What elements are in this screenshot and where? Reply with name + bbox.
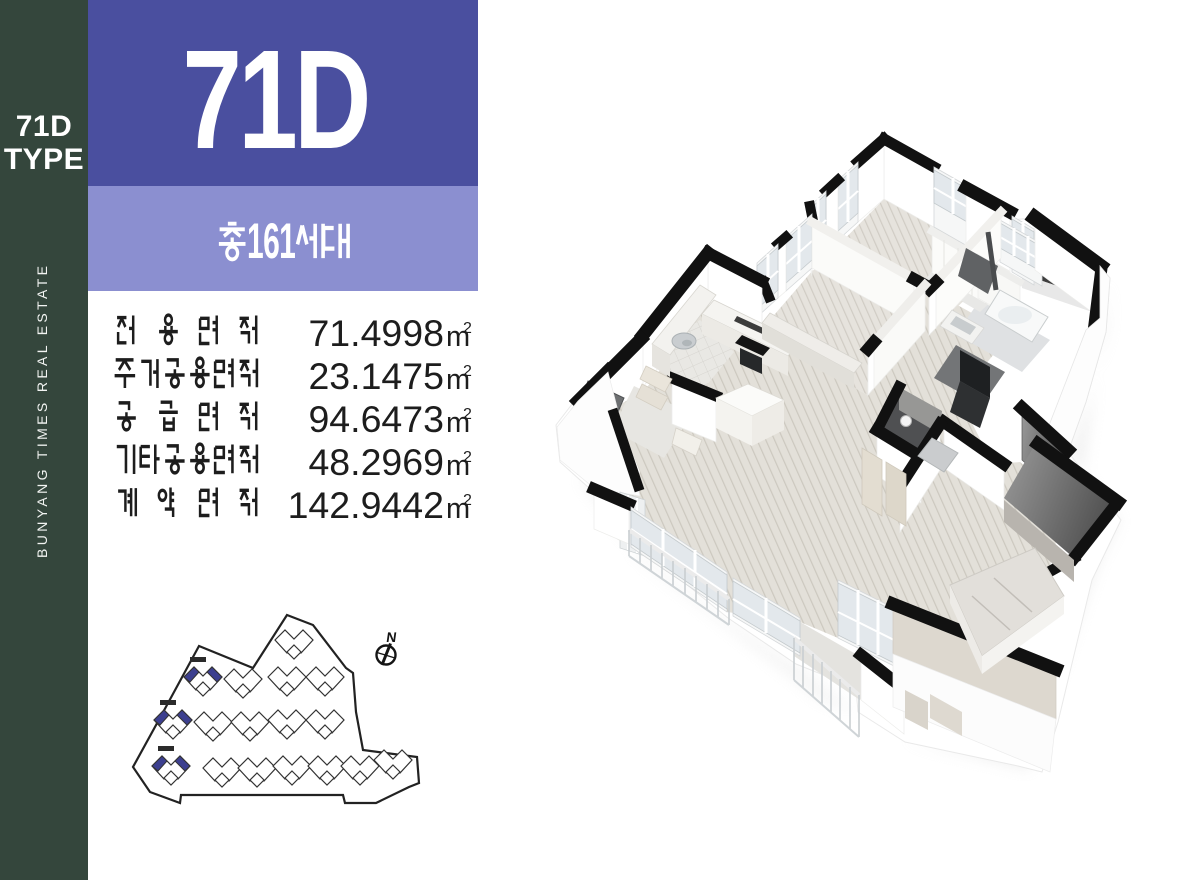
svg-text:2: 2: [463, 492, 472, 509]
svg-text:BUNYANG TIMES REAL ESTATE: BUNYANG TIMES REAL ESTATE: [34, 263, 50, 558]
svg-text:161: 161: [247, 213, 295, 269]
svg-text:2: 2: [463, 320, 472, 337]
svg-text:2: 2: [463, 449, 472, 466]
svg-text:2: 2: [463, 363, 472, 380]
svg-text:142.9442: 142.9442: [288, 484, 444, 526]
svg-text:71.4998: 71.4998: [308, 312, 444, 354]
svg-text:23.1475: 23.1475: [308, 355, 444, 397]
svg-text:48.2969: 48.2969: [308, 441, 444, 483]
svg-text:N: N: [385, 629, 397, 645]
svg-text:94.6473: 94.6473: [308, 398, 444, 440]
svg-text:2: 2: [463, 406, 472, 423]
